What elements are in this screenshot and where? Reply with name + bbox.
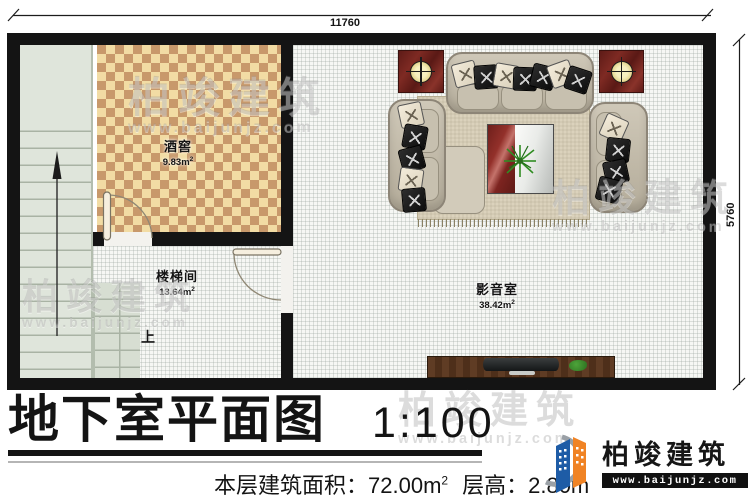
- page-title: 地下室平面图: [8, 394, 326, 445]
- title-underline: [8, 450, 482, 456]
- cabinet-plant-icon: [569, 360, 587, 371]
- stair-treads: [20, 115, 91, 373]
- room-name: 酒窖: [163, 136, 194, 155]
- floor-height-label: 层高：: [462, 473, 528, 498]
- room-label-stairwell: 楼梯间 13.64m2: [156, 266, 198, 298]
- brand-name: 柏竣建筑: [602, 442, 730, 469]
- tv: [483, 358, 559, 371]
- wall-divider-lower: [281, 313, 293, 378]
- pillow: [401, 187, 427, 213]
- floorplan-canvas: 11760 5760: [0, 0, 750, 502]
- floor-area-label: 本层建筑面积：: [214, 473, 368, 498]
- scale-label: 1:100: [372, 402, 495, 445]
- stairs-main-flight: [20, 45, 93, 378]
- speaker-right: [599, 50, 644, 93]
- brand-logo-icon: [536, 430, 598, 498]
- floor-area-value: 72.00m: [368, 473, 441, 498]
- wall-outer-right: [703, 33, 716, 390]
- room-name: 楼梯间: [156, 266, 198, 285]
- speaker-left: [398, 50, 444, 93]
- building-info-line: 本层建筑面积：72.00m2层高：2.80m: [214, 468, 589, 500]
- stairs-up-label: 上: [141, 327, 155, 347]
- room-area: 13.64m2: [156, 286, 198, 298]
- ceiling-light-icon: [611, 61, 633, 83]
- wall-cellar-bottom: [152, 232, 293, 246]
- dimension-right-label: 5760: [725, 190, 739, 240]
- room-label-wine-cellar: 酒窖 9.83m2: [163, 136, 194, 168]
- wine-cellar-door-opening: [104, 232, 152, 246]
- room-label-media-room: 影音室 38.42m2: [476, 279, 518, 311]
- dimension-top-label: 11760: [305, 17, 385, 29]
- title-underline-thin: [8, 461, 482, 463]
- room-area: 38.42m2: [476, 299, 518, 311]
- wall-outer-bottom: [7, 378, 716, 390]
- plant-icon: [501, 142, 539, 180]
- ceiling-light-icon: [410, 61, 432, 83]
- media-room-door-opening: [281, 246, 293, 313]
- room-name: 影音室: [476, 279, 518, 298]
- room-area: 9.83m2: [163, 156, 194, 168]
- brand-url: www.baijunjz.com: [602, 473, 748, 488]
- wall-outer-top: [7, 33, 716, 45]
- stairs-return-flight: [93, 283, 140, 378]
- tv-stand: [509, 371, 535, 375]
- wall-cellar-bottom-stub: [93, 232, 104, 246]
- wall-divider-upper: [281, 45, 293, 246]
- wall-outer-left: [7, 33, 20, 390]
